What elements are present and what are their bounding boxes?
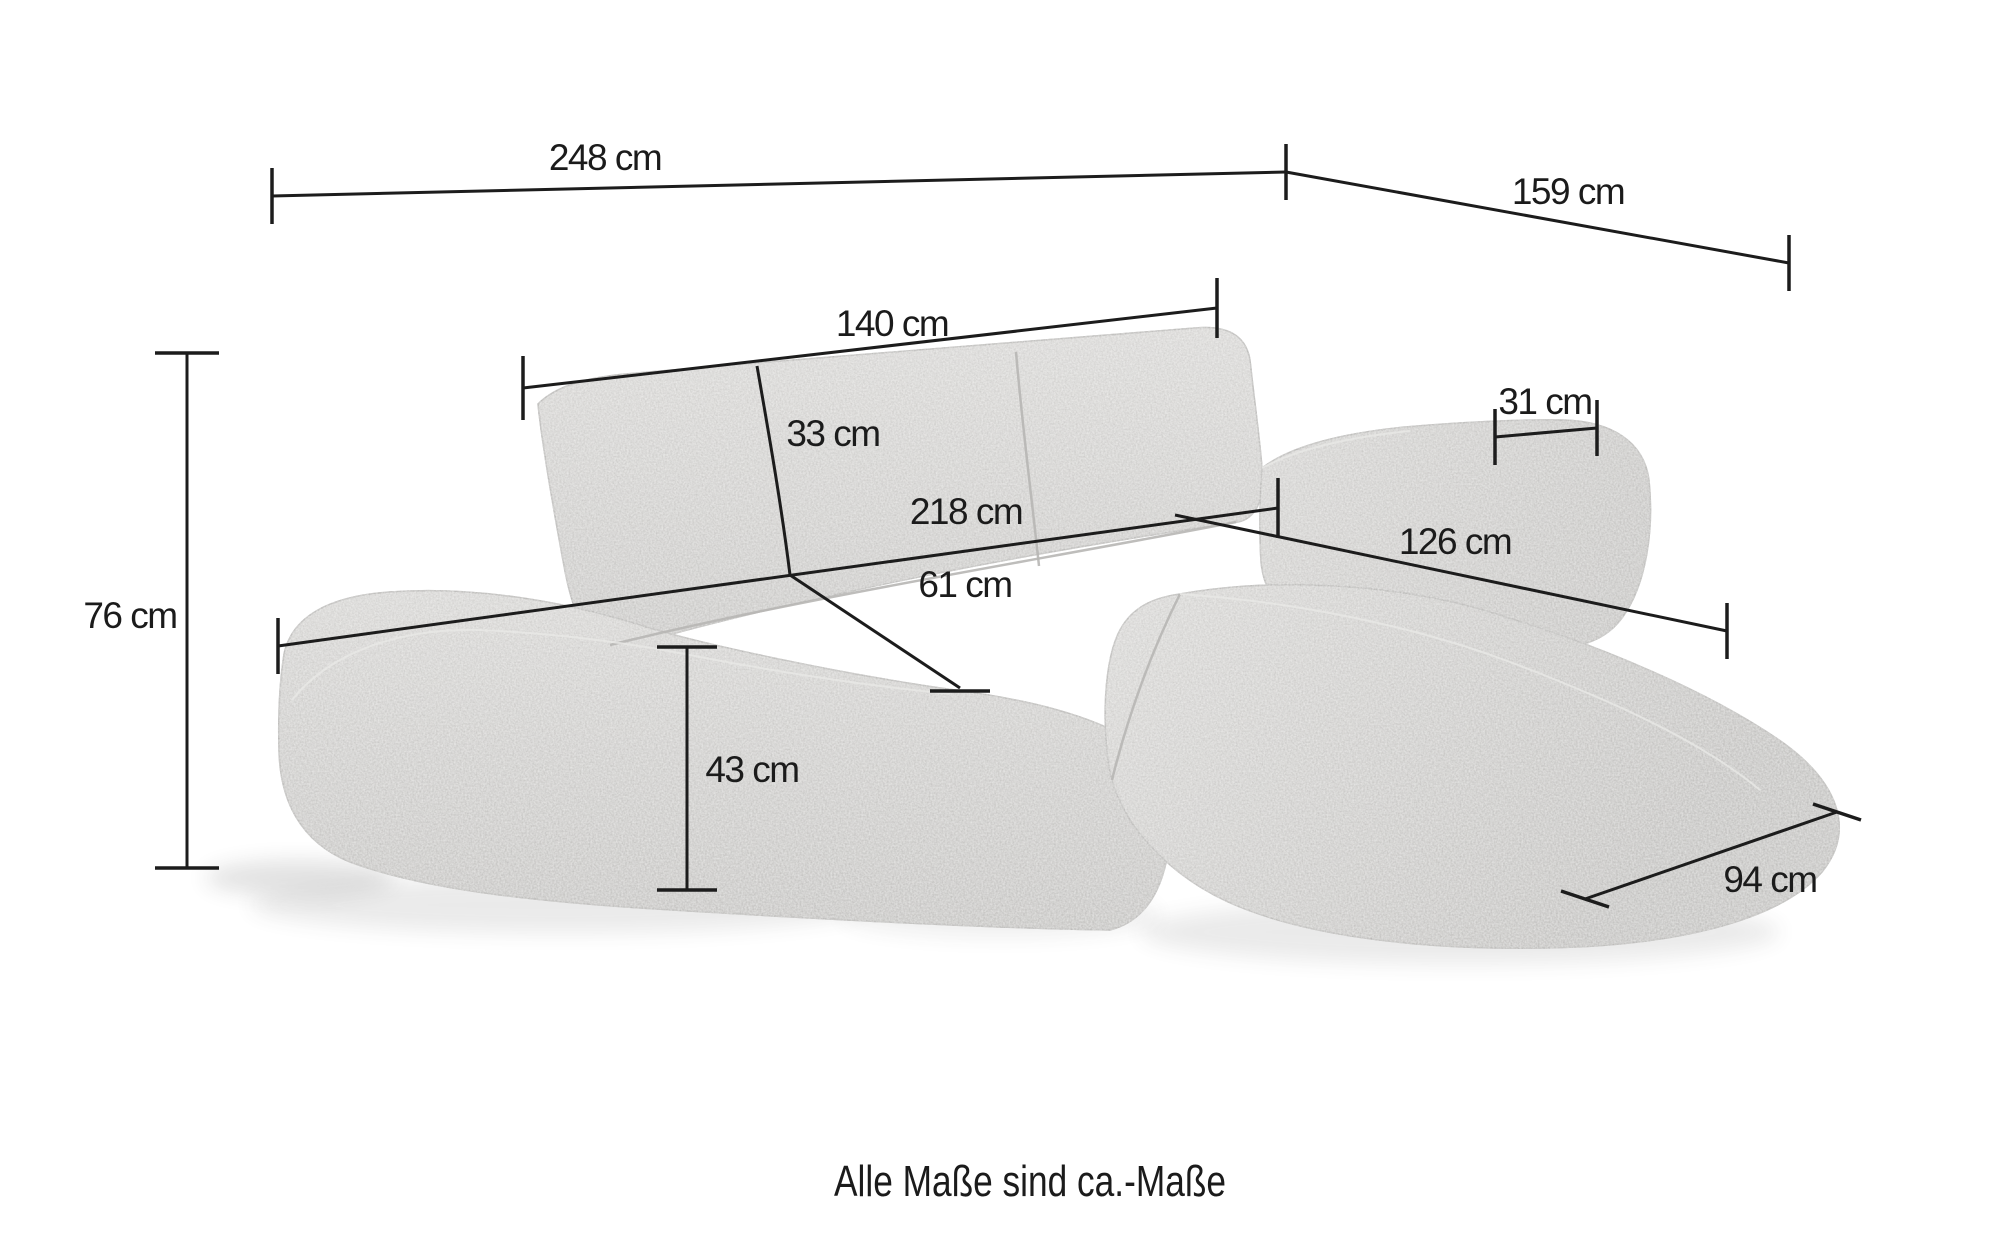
- dim-backrest-height-label: 33 cm: [786, 413, 879, 454]
- dim-chaise-length-label: 126 cm: [1399, 521, 1511, 562]
- sofa-dimension-diagram: 248 cm 159 cm 140 cm 33 cm 218 cm: [0, 0, 2000, 1250]
- dim-seat-height-label: 43 cm: [705, 749, 798, 790]
- diagram-canvas: 248 cm 159 cm 140 cm 33 cm 218 cm: [0, 0, 2000, 1250]
- dim-total-height-label: 76 cm: [83, 595, 176, 636]
- dim-backrest-width-label: 140 cm: [836, 303, 948, 344]
- dim-seat-width-label: 218 cm: [910, 491, 1022, 532]
- dim-armrest-width-label: 31 cm: [1498, 381, 1591, 422]
- dim-overall-width-label: 248 cm: [549, 137, 661, 178]
- dim-chaise-front-width-label: 94 cm: [1723, 859, 1816, 900]
- dim-overall-depth-label: 159 cm: [1512, 171, 1624, 212]
- caption: Alle Maße sind ca.-Maße: [834, 1157, 1226, 1206]
- dim-seat-depth-label: 61 cm: [918, 564, 1011, 605]
